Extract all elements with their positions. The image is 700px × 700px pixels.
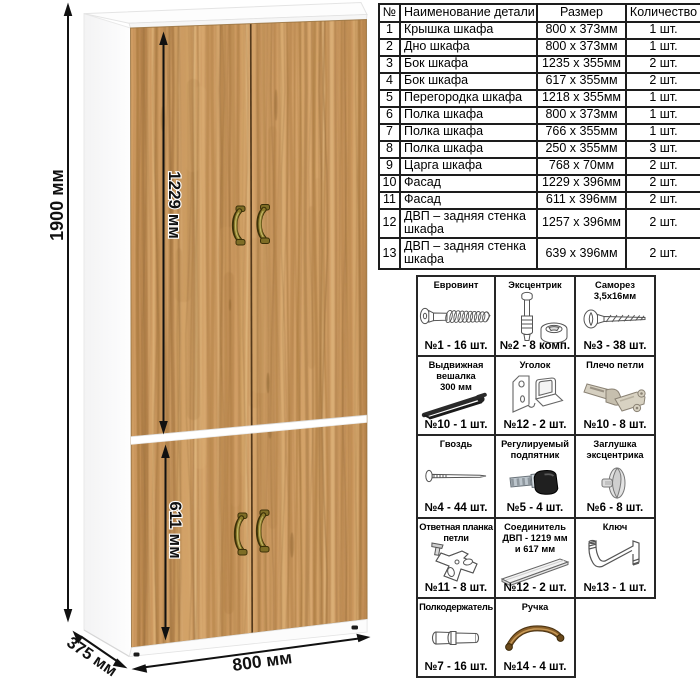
- svg-text:1900 мм: 1900 мм: [47, 169, 67, 241]
- svg-text:1229 мм: 1229 мм: [165, 171, 184, 239]
- svg-text:800 мм: 800 мм: [231, 647, 293, 675]
- svg-text:611 мм: 611 мм: [166, 501, 185, 558]
